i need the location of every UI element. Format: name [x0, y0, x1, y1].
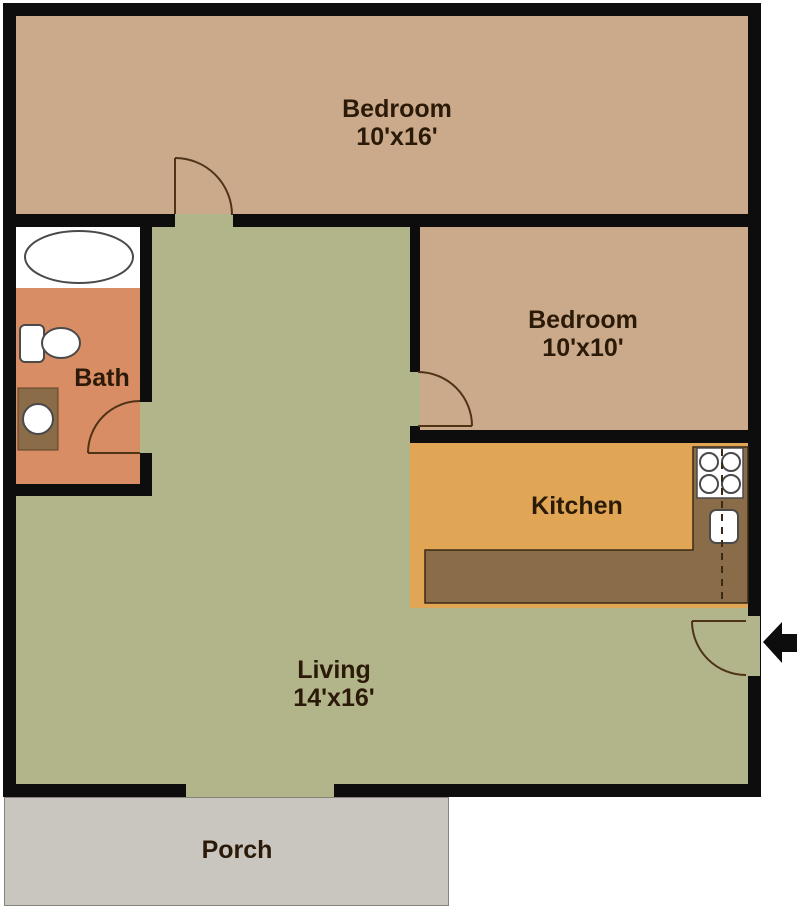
- hallway-floor: [152, 227, 410, 496]
- room-name: Bath: [74, 364, 130, 392]
- bathtub-area: [16, 227, 140, 288]
- living-label: Living 14'x16': [293, 656, 374, 712]
- bedroom-large-door-opening: [175, 214, 233, 227]
- room-name: Porch: [202, 836, 273, 864]
- bedroom-small-label: Bedroom 10'x10': [528, 306, 638, 362]
- bedroom-large-label: Bedroom 10'x16': [342, 95, 452, 151]
- bath-door-opening: [140, 402, 152, 453]
- kitchen-label: Kitchen: [531, 492, 623, 520]
- room-size: 10'x10': [528, 334, 638, 362]
- room-name: Bedroom: [342, 95, 452, 123]
- porch-label: Porch: [202, 836, 273, 864]
- porch-door-opening: [186, 784, 334, 797]
- room-name: Kitchen: [531, 492, 623, 520]
- room-size: 10'x16': [342, 123, 452, 151]
- kitchen-floor: [410, 443, 748, 608]
- entry-arrow-icon: [763, 622, 797, 663]
- floor-plan: Bedroom 10'x16' Bedroom 10'x10' Bath Kit…: [0, 0, 800, 912]
- bath-label: Bath: [74, 364, 130, 392]
- bedroom-small-door-opening: [408, 372, 420, 426]
- room-size: 14'x16': [293, 684, 374, 712]
- room-name: Living: [293, 656, 374, 684]
- entry-door-opening: [748, 616, 760, 676]
- room-name: Bedroom: [528, 306, 638, 334]
